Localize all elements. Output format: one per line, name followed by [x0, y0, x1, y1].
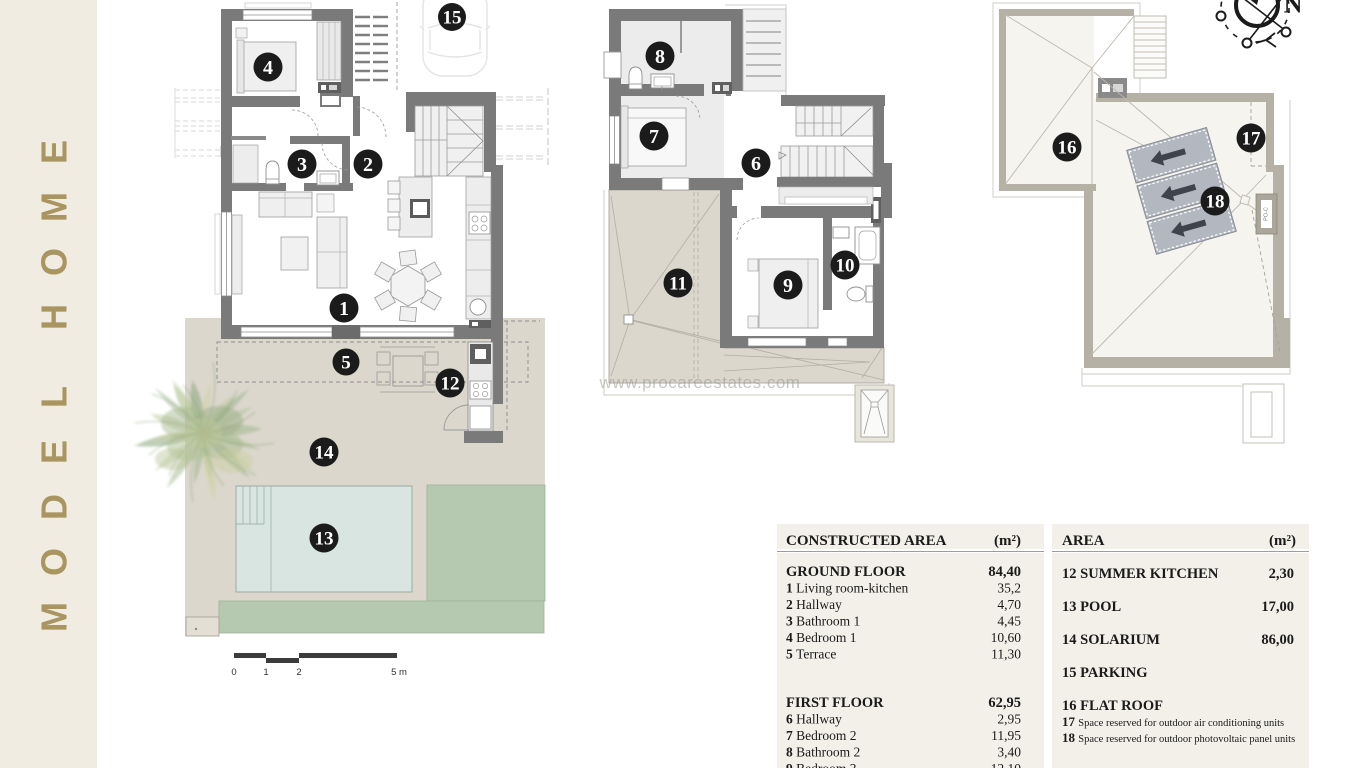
svg-text:4: 4 — [263, 57, 273, 79]
svg-text:N: N — [1284, 0, 1303, 19]
svg-text:12,10: 12,10 — [991, 761, 1022, 768]
svg-text:8 Bathroom 2: 8 Bathroom 2 — [786, 745, 860, 760]
svg-text:1: 1 — [339, 298, 349, 320]
svg-text:10: 10 — [836, 256, 855, 277]
svg-text:17,00: 17,00 — [1261, 599, 1294, 615]
svg-text:L: L — [34, 386, 75, 408]
svg-text:16 FLAT ROOF: 16 FLAT ROOF — [1062, 698, 1163, 714]
svg-text:5 m: 5 m — [391, 667, 407, 678]
svg-text:0: 0 — [231, 667, 236, 678]
svg-text:D: D — [34, 494, 75, 520]
svg-text:1 Living room-kitchen: 1 Living room-kitchen — [786, 581, 908, 596]
svg-text:17: 17 — [1242, 129, 1262, 150]
svg-text:M: M — [34, 192, 75, 222]
svg-text:8: 8 — [655, 46, 665, 68]
svg-text:3: 3 — [297, 154, 307, 176]
svg-text:12: 12 — [441, 374, 460, 395]
svg-text:3,40: 3,40 — [997, 745, 1021, 760]
svg-text:M: M — [34, 602, 75, 632]
svg-text:GROUND FLOOR: GROUND FLOOR — [786, 564, 906, 580]
svg-text:2: 2 — [363, 154, 373, 176]
svg-text:35,2: 35,2 — [997, 581, 1021, 596]
svg-text:1: 1 — [263, 667, 268, 678]
svg-text:86,00: 86,00 — [1261, 632, 1294, 648]
svg-text:11: 11 — [669, 274, 687, 295]
svg-text:18: 18 — [1206, 192, 1225, 213]
svg-text:E: E — [34, 140, 75, 164]
svg-text:9 Bedroom 3: 9 Bedroom 3 — [786, 761, 857, 768]
svg-text:H: H — [34, 304, 75, 330]
svg-text:CONSTRUCTED AREA: CONSTRUCTED AREA — [786, 533, 947, 549]
svg-text:2: 2 — [296, 667, 301, 678]
svg-text:62,95: 62,95 — [988, 695, 1021, 711]
svg-text:11,30: 11,30 — [991, 647, 1021, 662]
svg-text:6: 6 — [751, 153, 761, 175]
svg-text:PO-C: PO-C — [1264, 207, 1270, 221]
svg-text:4,45: 4,45 — [997, 614, 1021, 629]
svg-text:4,70: 4,70 — [997, 597, 1021, 612]
svg-text:2 Hallway: 2 Hallway — [786, 597, 842, 612]
svg-text:84,40: 84,40 — [988, 564, 1021, 580]
svg-text:5: 5 — [341, 353, 351, 374]
svg-text:AREA: AREA — [1062, 533, 1105, 549]
svg-text:14: 14 — [315, 443, 335, 464]
svg-text:14 SOLARIUM: 14 SOLARIUM — [1062, 632, 1160, 648]
svg-text:13: 13 — [315, 529, 334, 550]
svg-text:15 PARKING: 15 PARKING — [1062, 665, 1148, 681]
svg-text:16: 16 — [1058, 138, 1077, 159]
svg-text:O: O — [34, 548, 75, 576]
svg-text:(m²): (m²) — [1269, 533, 1296, 549]
svg-text:E: E — [34, 440, 75, 464]
svg-text:12 SUMMER KITCHEN: 12 SUMMER KITCHEN — [1062, 566, 1219, 582]
svg-text:3 Bathroom 1: 3 Bathroom 1 — [786, 614, 860, 629]
svg-text:7 Bedroom 2: 7 Bedroom 2 — [786, 728, 857, 743]
svg-text:7: 7 — [649, 126, 659, 148]
svg-text:www.procareestates.com: www.procareestates.com — [599, 373, 801, 392]
svg-text:5 Terrace: 5 Terrace — [786, 647, 836, 662]
svg-text:4 Bedroom 1: 4 Bedroom 1 — [786, 630, 857, 645]
svg-text:11,95: 11,95 — [991, 728, 1021, 743]
svg-text:2,30: 2,30 — [1269, 566, 1294, 582]
svg-text:6 Hallway: 6 Hallway — [786, 712, 842, 727]
svg-text:FIRST FLOOR: FIRST FLOOR — [786, 695, 884, 711]
svg-text:15: 15 — [443, 8, 462, 29]
svg-text:10,60: 10,60 — [991, 630, 1022, 645]
svg-text:O: O — [34, 248, 75, 276]
svg-text:13 POOL: 13 POOL — [1062, 599, 1122, 615]
svg-text:2,95: 2,95 — [997, 712, 1021, 727]
svg-text:9: 9 — [783, 275, 793, 297]
svg-text:(m²): (m²) — [994, 533, 1021, 549]
